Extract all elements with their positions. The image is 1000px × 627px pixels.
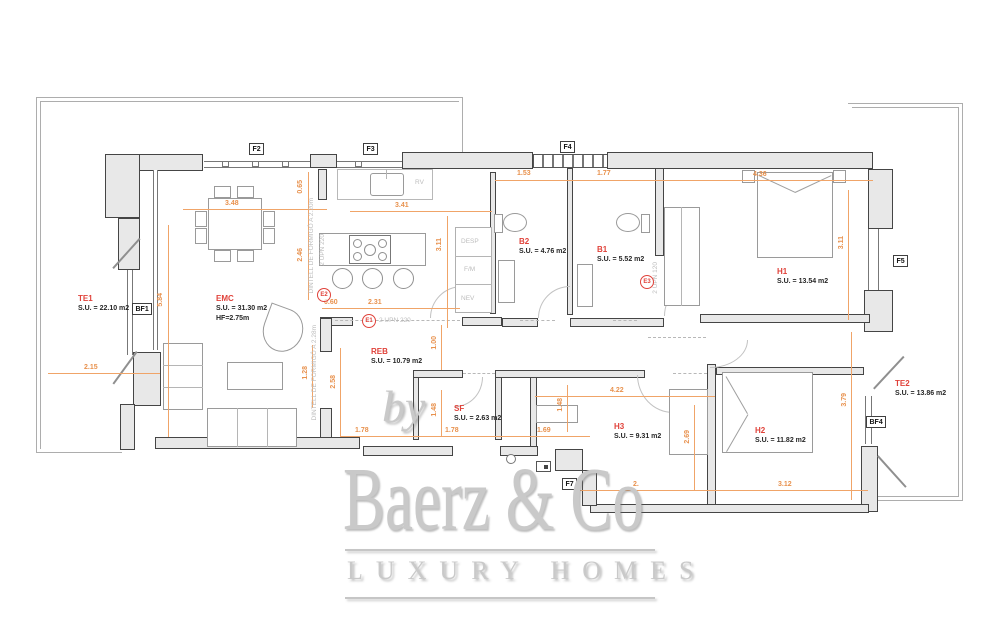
h3-wardrobe	[669, 389, 708, 455]
dim-line	[447, 216, 448, 328]
room-area-te2: S.U. = 13.86 m2	[895, 390, 946, 397]
dim-line	[694, 405, 695, 490]
wall-h1-bottom	[700, 314, 870, 323]
dim-text: 1.28	[302, 366, 309, 380]
closet-divider	[455, 256, 492, 257]
room-height-emc: HF=2.75m	[216, 315, 249, 322]
ref-label-f5: F5	[893, 255, 908, 267]
dining-chair	[214, 186, 231, 198]
dim-text: 3.48	[225, 200, 239, 207]
exterior-wall-se-corner	[861, 446, 878, 512]
marker-e3: E3	[640, 275, 654, 289]
dim-text: 4.36	[753, 171, 767, 178]
exterior-wall-sw-step	[120, 404, 135, 450]
room-area-h3: S.U. = 9.31 m2	[614, 433, 661, 440]
watermark-tagline: LUXURY HOMES	[347, 558, 706, 584]
sofa-cushion-line	[267, 408, 268, 447]
floor-plan: 3.48 0.65 2.46 3.41 3.11 1.53 1.77 4.36 …	[0, 0, 1000, 627]
room-area-reb: S.U. = 10.79 m2	[371, 358, 422, 365]
entry-wall-right	[582, 470, 597, 506]
h1-bed	[757, 172, 833, 258]
dim-text: 2.46	[297, 248, 304, 262]
window-mullion	[222, 161, 229, 167]
window-mullion	[252, 161, 259, 167]
beam-dashed	[613, 320, 637, 321]
dim-line	[567, 385, 568, 432]
exterior-wall-left-upper	[105, 154, 140, 218]
door-leaf-te2-lower	[877, 455, 906, 487]
window-f4	[533, 154, 608, 168]
sofa-vertical	[163, 343, 203, 410]
dining-chair	[263, 211, 275, 227]
marker-e2: E2	[317, 288, 331, 302]
dim-text: 5.84	[157, 293, 164, 307]
room-name-b1: B1	[597, 246, 607, 254]
b2-toilet-tank	[494, 214, 503, 233]
exterior-wall-sw-column	[133, 352, 161, 406]
wall-hall-seg	[462, 317, 502, 326]
door-arc-h3	[637, 375, 673, 413]
room-name-te1: TE1	[78, 295, 93, 303]
dim-line	[848, 190, 849, 320]
dining-chair	[214, 250, 231, 262]
dim-text: 1.00	[431, 336, 438, 350]
terrace-line	[878, 496, 959, 497]
h1-wardrobe	[664, 207, 700, 306]
wall-pier	[310, 154, 337, 168]
terrace-line	[36, 97, 37, 453]
exterior-wall-bottom-sf	[500, 446, 538, 456]
sofa-horizontal	[207, 408, 297, 447]
terrace-line	[878, 500, 963, 501]
room-name-h2: H2	[755, 427, 765, 435]
wall-sf-right	[495, 370, 502, 440]
dim-text: 2.58	[330, 375, 337, 389]
room-name-h1: H1	[777, 268, 787, 276]
dining-chair	[195, 228, 207, 244]
dim-text: 2.31	[368, 299, 382, 306]
watermark-rule-top	[345, 549, 655, 551]
exterior-wall-bottom-reb	[363, 446, 453, 456]
kitchen-sink	[370, 173, 404, 196]
ref-label-f2: F2	[249, 143, 264, 155]
dim-text: 3.11	[436, 238, 443, 251]
window-mullion	[282, 161, 289, 167]
room-name-b2: B2	[519, 238, 529, 246]
room-area-h1: S.U. = 13.54 m2	[777, 278, 828, 285]
beam-dashed	[673, 373, 707, 374]
dim-text: 1.78	[445, 427, 459, 434]
b1-toilet-tank	[641, 214, 650, 233]
wardrobe-rail	[681, 207, 682, 306]
dim-text: 3.41	[395, 202, 409, 209]
dim-line	[340, 348, 341, 437]
exterior-wall-top-right	[607, 152, 873, 169]
bar-stool	[332, 268, 353, 289]
dim-line	[851, 332, 852, 500]
dim-text: 1.48	[557, 398, 564, 412]
entry-symbol	[506, 454, 516, 464]
dim-line	[48, 373, 160, 374]
exterior-wall-ne-corner	[868, 169, 893, 229]
dim-text: 0.65	[297, 180, 304, 194]
terrace-line	[962, 103, 963, 501]
window-f5	[868, 229, 879, 290]
label-fm: F/M	[464, 267, 475, 274]
ref-label-f7: F7	[562, 478, 577, 490]
b1-toilet-bowl	[616, 213, 640, 232]
window-f3	[337, 161, 402, 168]
room-area-te1: S.U. = 22.10 m2	[78, 305, 129, 312]
beam-text-dintell228: DINTELL DE FORMIGÓ A 2.28m	[312, 325, 319, 420]
dim-text: 1.53	[517, 170, 531, 177]
dim-line	[495, 180, 873, 181]
label-nev: NEV	[461, 296, 474, 303]
room-name-reb: REB	[371, 348, 388, 356]
room-area-emc: S.U. = 31.30 m2	[216, 305, 267, 312]
terrace-line	[40, 101, 41, 449]
dim-line	[322, 308, 460, 309]
marker-e1: E1	[362, 314, 376, 328]
burner	[378, 252, 387, 261]
dim-line	[441, 390, 442, 437]
wall-b1-h1	[655, 168, 664, 256]
burner	[364, 244, 376, 256]
terrace-line	[36, 97, 463, 98]
h1-nightstand	[833, 170, 846, 183]
sink-faucet	[386, 169, 387, 179]
exterior-wall-right-mid	[864, 290, 893, 332]
room-area-sf: S.U. = 2.63 m2	[454, 415, 501, 422]
window-mullion	[355, 161, 362, 167]
burner	[353, 239, 362, 248]
dim-text: 3.79	[841, 393, 848, 407]
window-emc-left	[153, 170, 158, 350]
b2-sink	[498, 260, 515, 303]
beam-dashed	[648, 337, 706, 338]
terrace-line	[958, 107, 959, 497]
dining-chair	[237, 186, 254, 198]
dining-chair	[195, 211, 207, 227]
dim-text: 2.69	[684, 430, 691, 444]
wall-h3-top	[495, 370, 645, 378]
entry-door-box	[536, 461, 551, 472]
b2-toilet-bowl	[503, 213, 527, 232]
door-arc-sf	[455, 377, 483, 407]
ref-label-bf1: BF1	[132, 303, 152, 315]
dim-line	[340, 436, 590, 437]
beam-dashed	[520, 320, 555, 321]
dim-line	[183, 209, 327, 210]
wall-emc-reb-lower	[320, 408, 332, 438]
ref-label-bf4: BF4	[866, 416, 886, 428]
room-name-emc: EMC	[216, 295, 234, 303]
dim-line	[168, 225, 169, 437]
dim-line	[580, 490, 868, 491]
beam-text-upn220: 2 UPN 220	[320, 234, 327, 266]
label-desp: DESP	[461, 239, 479, 246]
wall-sf-left	[413, 370, 419, 440]
dining-chair	[263, 228, 275, 244]
dim-line	[350, 211, 492, 212]
terrace-line	[36, 452, 122, 453]
sofa-cushion-line	[237, 408, 238, 447]
burner	[378, 239, 387, 248]
watermark-rule-bottom	[345, 597, 655, 599]
door-arc-b1	[538, 286, 570, 318]
dim-text: 3.12	[778, 481, 792, 488]
dim-line	[441, 325, 442, 370]
bar-stool	[362, 268, 383, 289]
burner	[353, 252, 362, 261]
wall-kitchen-pier	[318, 169, 327, 200]
sofa-cushion-line	[163, 387, 203, 388]
closet-divider	[455, 284, 492, 285]
ref-label-f3: F3	[363, 143, 378, 155]
cooktop	[349, 235, 391, 264]
exterior-wall-left-step	[118, 218, 140, 270]
terrace-line	[852, 107, 959, 108]
dim-text: 1.69	[537, 427, 551, 434]
entry-wall-corner	[555, 449, 583, 471]
dining-chair	[237, 250, 254, 262]
b1-sink	[577, 264, 593, 307]
label-rv: RV	[415, 180, 424, 187]
ref-label-f4: F4	[560, 141, 575, 153]
bar-stool	[393, 268, 414, 289]
sofa-cushion-line	[163, 365, 203, 366]
beam-text-upn220-h: 2 UPN 220	[379, 318, 411, 325]
dim-text: 1.78	[355, 427, 369, 434]
watermark-brand: Baerz & Co	[343, 455, 644, 545]
dim-text: 2.15	[84, 364, 98, 371]
terrace-line	[40, 101, 459, 102]
coffee-table	[227, 362, 283, 390]
wall-emc-reb-upper	[320, 318, 332, 352]
room-area-b2: S.U. = 4.76 m2	[519, 248, 566, 255]
dim-text: 1.48	[431, 403, 438, 417]
room-name-h3: H3	[614, 423, 624, 431]
dim-text: 4.22	[610, 387, 624, 394]
exterior-wall-bottom-right	[590, 504, 869, 513]
door-arc-h2	[710, 340, 748, 368]
beam-dashed	[463, 373, 495, 374]
room-name-te2: TE2	[895, 380, 910, 388]
beam-text-dintell220: DINTELL DE FORMIGÓ A 2.20m	[309, 198, 316, 293]
dim-text: 2.	[633, 481, 639, 488]
room-name-sf: SF	[454, 405, 464, 413]
terrace-line	[462, 97, 463, 154]
wall-h3-h2	[707, 364, 716, 505]
dim-text: 3.11	[838, 236, 845, 249]
room-area-h2: S.U. = 11.82 m2	[755, 437, 806, 444]
dim-text: 1.77	[597, 170, 611, 177]
beam-text-upn120: 2 UPN 120	[653, 262, 660, 294]
terrace-line	[848, 103, 963, 104]
exterior-wall-top-mid	[402, 152, 533, 169]
room-area-b1: S.U. = 5.52 m2	[597, 256, 644, 263]
